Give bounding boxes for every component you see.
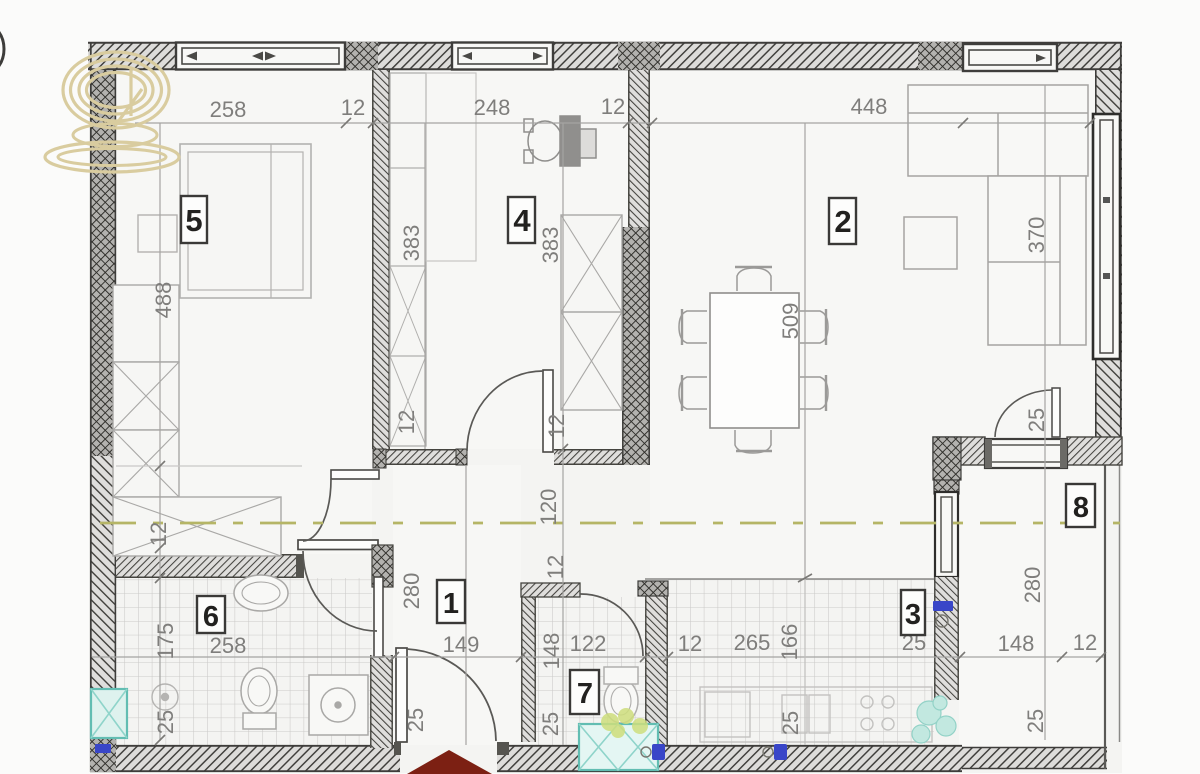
svg-text:25: 25 — [778, 711, 803, 735]
svg-text:12: 12 — [543, 555, 568, 579]
svg-text:25: 25 — [153, 710, 178, 734]
svg-text:383: 383 — [538, 227, 563, 264]
svg-text:166: 166 — [777, 624, 802, 661]
svg-text:25: 25 — [1024, 408, 1049, 432]
svg-text:149: 149 — [443, 632, 480, 657]
svg-text:122: 122 — [570, 631, 607, 656]
svg-text:12: 12 — [394, 410, 419, 434]
svg-text:7: 7 — [577, 678, 593, 710]
svg-text:12: 12 — [146, 522, 171, 546]
svg-text:488: 488 — [151, 282, 176, 319]
svg-text:25: 25 — [538, 712, 563, 736]
svg-text:8: 8 — [1073, 492, 1089, 524]
svg-text:12: 12 — [1073, 630, 1097, 655]
svg-text:6: 6 — [203, 601, 219, 633]
svg-text:12: 12 — [544, 414, 569, 438]
svg-text:258: 258 — [210, 97, 247, 122]
svg-text:383: 383 — [399, 225, 424, 262]
svg-text:5: 5 — [185, 203, 202, 238]
svg-text:148: 148 — [998, 631, 1035, 656]
svg-text:280: 280 — [1020, 567, 1045, 604]
svg-text:3: 3 — [905, 599, 921, 631]
svg-text:25: 25 — [1023, 709, 1048, 733]
svg-text:4: 4 — [513, 203, 531, 238]
svg-text:1: 1 — [443, 588, 459, 620]
svg-text:175: 175 — [153, 623, 178, 660]
svg-text:265: 265 — [734, 630, 771, 655]
svg-text:25: 25 — [403, 708, 428, 732]
svg-text:12: 12 — [678, 631, 702, 656]
svg-text:120: 120 — [536, 489, 561, 526]
svg-text:448: 448 — [851, 94, 888, 119]
svg-text:509: 509 — [778, 303, 803, 340]
svg-text:258: 258 — [210, 633, 247, 658]
svg-text:148: 148 — [539, 633, 564, 670]
svg-text:370: 370 — [1024, 217, 1049, 254]
svg-text:280: 280 — [399, 573, 424, 610]
svg-text:2: 2 — [834, 204, 851, 239]
svg-text:248: 248 — [474, 95, 511, 120]
svg-text:12: 12 — [341, 95, 365, 120]
svg-text:12: 12 — [601, 94, 625, 119]
